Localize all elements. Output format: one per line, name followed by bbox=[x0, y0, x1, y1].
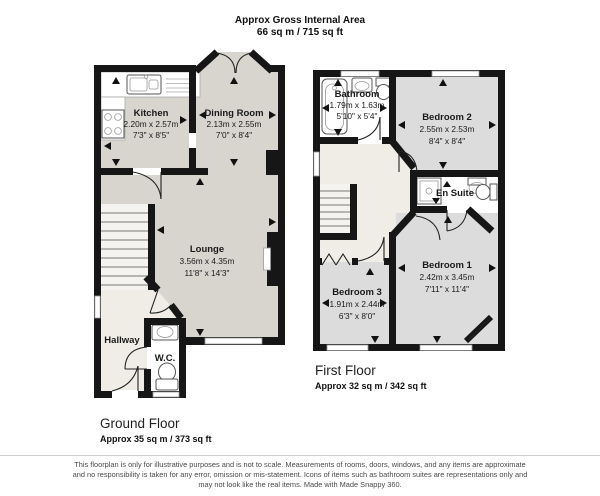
bedroom3-window bbox=[327, 345, 368, 350]
dining-label: Dining Room bbox=[204, 108, 263, 119]
bedroom1-imperial: 7'11" x 11'4" bbox=[425, 284, 469, 294]
floorplan-drawing: Kitchen 2.20m x 2.57m 7'3" x 8'5" Dining… bbox=[0, 0, 600, 496]
bedroom3-metric: 1.91m x 2.44m bbox=[330, 299, 385, 309]
staircase-first bbox=[320, 184, 350, 233]
bedroom1-window bbox=[420, 345, 472, 350]
hallway-label: Hallway bbox=[104, 335, 140, 346]
ensuite-toilet-icon bbox=[476, 184, 497, 200]
first-floor-title-block: First Floor Approx 32 sq m / 342 sq ft bbox=[315, 363, 427, 391]
dining-imperial: 7'0" x 8'4" bbox=[216, 130, 252, 140]
ground-floor-area: Approx 35 sq m / 373 sq ft bbox=[100, 434, 212, 444]
hallway-window bbox=[95, 296, 100, 318]
first-floor-area: Approx 32 sq m / 342 sq ft bbox=[315, 381, 427, 391]
disclaimer-line: and no responsibility is taken for any e… bbox=[0, 470, 600, 480]
ensuite-label: En Suite bbox=[436, 188, 474, 199]
ground-floor-plan: Kitchen 2.20m x 2.57m 7'3" x 8'5" Dining… bbox=[94, 52, 285, 399]
bedroom2-window bbox=[432, 71, 479, 76]
lounge-imperial: 11'8" x 14'3" bbox=[185, 268, 230, 278]
first-floor-title: First Floor bbox=[315, 363, 427, 378]
disclaimer-line: may not look like the real items. Made w… bbox=[0, 480, 600, 490]
dining-metric: 2.13m x 2.55m bbox=[207, 119, 262, 129]
lounge-metric: 3.56m x 4.35m bbox=[180, 256, 235, 266]
disclaimer-line: This floorplan is only for illustrative … bbox=[0, 460, 600, 470]
bedroom2-label: Bedroom 2 bbox=[422, 112, 472, 123]
kitchen-imperial: 7'3" x 8'5" bbox=[133, 130, 169, 140]
bedroom3-label: Bedroom 3 bbox=[332, 287, 382, 298]
first-floor-plan: Bathroom 1.79m x 1.63m 5'10" x 5'4" Bedr… bbox=[313, 70, 505, 351]
bathroom-window bbox=[341, 71, 379, 76]
kitchen-label: Kitchen bbox=[134, 108, 169, 119]
front-door-opening bbox=[112, 390, 138, 399]
bathroom-metric: 1.79m x 1.63m bbox=[330, 100, 385, 110]
wc-window bbox=[153, 392, 179, 397]
bedroom1-metric: 2.42m x 3.45m bbox=[420, 272, 475, 282]
wc-toilet-icon bbox=[156, 363, 178, 390]
bedroom2-metric: 2.55m x 2.53m bbox=[420, 124, 475, 134]
fireplace-icon bbox=[264, 248, 271, 270]
landing-window bbox=[314, 152, 319, 176]
bathroom-label: Bathroom bbox=[335, 89, 380, 100]
wc-label: W.C. bbox=[155, 353, 176, 364]
bedroom1-label: Bedroom 1 bbox=[422, 260, 472, 271]
lounge-window bbox=[205, 338, 262, 344]
bathroom-imperial: 5'10" x 5'4" bbox=[337, 111, 378, 121]
stove-icon bbox=[102, 110, 124, 138]
wc-sink-icon bbox=[152, 325, 178, 340]
lounge-label: Lounge bbox=[190, 244, 224, 255]
disclaimer: This floorplan is only for illustrative … bbox=[0, 455, 600, 489]
bedroom3-imperial: 6'3" x 8'0" bbox=[339, 311, 375, 321]
kitchen-metric: 2.20m x 2.57m bbox=[124, 119, 179, 129]
ground-floor-title: Ground Floor bbox=[100, 416, 212, 431]
bedroom2-imperial: 8'4" x 8'4" bbox=[429, 136, 465, 146]
ground-floor-title-block: Ground Floor Approx 35 sq m / 373 sq ft bbox=[100, 416, 212, 444]
staircase-ground bbox=[101, 204, 148, 290]
